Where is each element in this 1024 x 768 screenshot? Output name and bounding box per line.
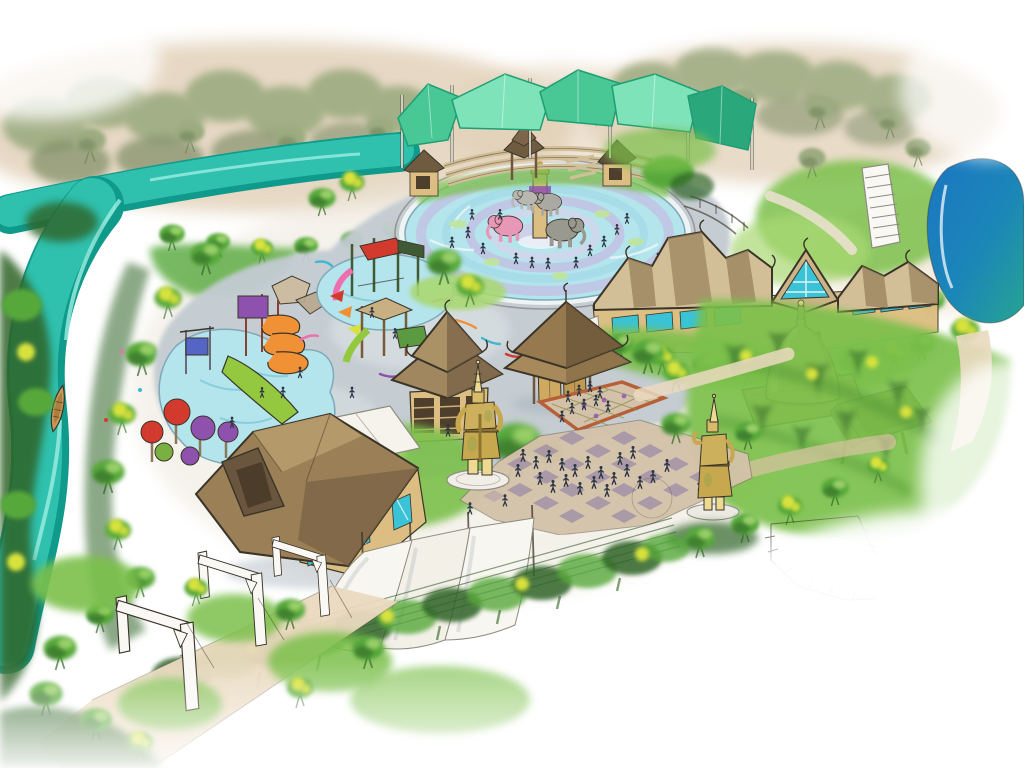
illustration-canvas: watercolor concept rendering <box>0 0 1024 768</box>
concept-rendering: Aerial watercolor concept rendering of a… <box>0 0 1024 768</box>
